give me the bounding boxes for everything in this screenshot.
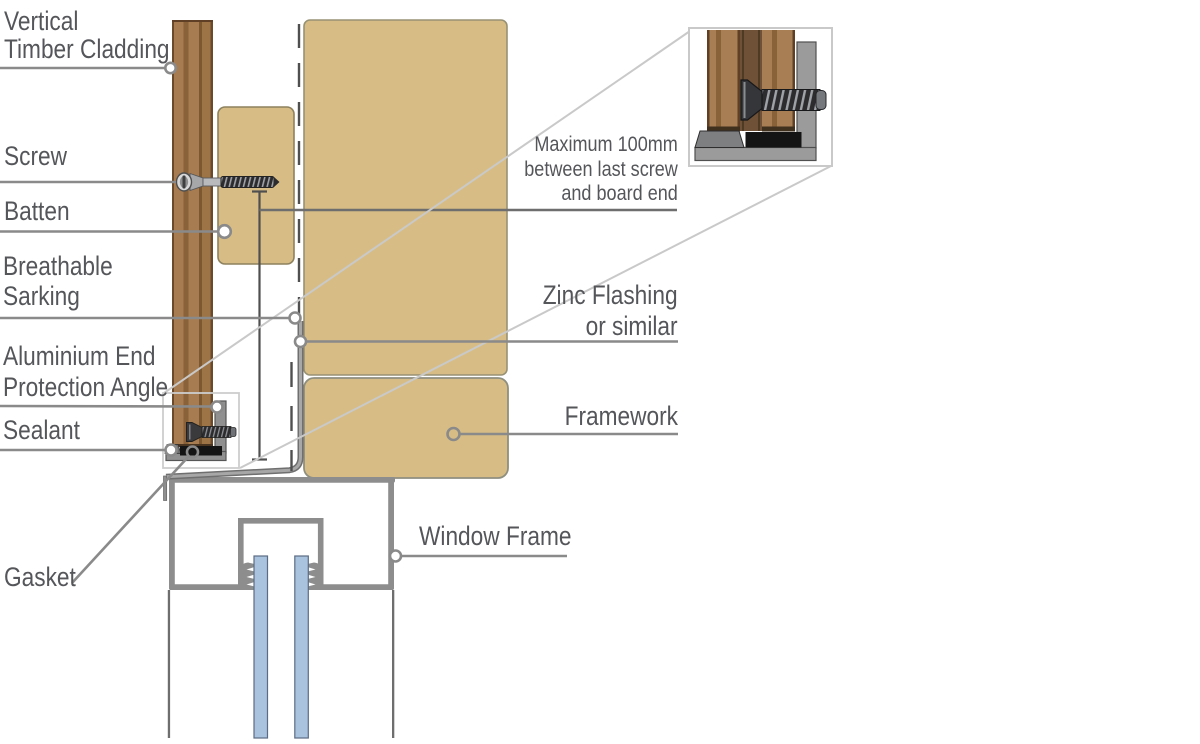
window-frame bbox=[168, 477, 395, 738]
frame-jamb-line-right bbox=[392, 590, 394, 738]
leader-vertical-timber-cladding bbox=[0, 63, 176, 73]
label-aluminium-end-protection-angle: Aluminium End Protection Angle bbox=[3, 341, 168, 403]
construction-detail-diagram: Vertical Timber Cladding Screw Batten Br… bbox=[0, 0, 1200, 744]
leader-sealant bbox=[0, 445, 177, 456]
structure-blocks bbox=[304, 20, 508, 478]
glass-pane-inner bbox=[295, 556, 309, 738]
glass-pane-outer bbox=[254, 556, 268, 738]
label-batten: Batten bbox=[4, 196, 70, 226]
label-max-screw-note: Maximum 100mm between last screw and boa… bbox=[524, 132, 678, 206]
glazing-gasket-left bbox=[239, 563, 255, 591]
label-framework: Framework bbox=[565, 401, 678, 431]
diagram-artwork bbox=[0, 0, 1200, 744]
framework-block bbox=[304, 378, 508, 478]
label-sealant: Sealant bbox=[3, 415, 80, 445]
frame-jamb-line-left bbox=[168, 590, 170, 738]
glazing-gasket-right bbox=[308, 563, 324, 591]
label-window-frame: Window Frame bbox=[419, 521, 571, 551]
inset-sealant bbox=[746, 132, 802, 148]
label-breathable-sarking: Breathable Sarking bbox=[3, 251, 113, 311]
label-vertical-timber-cladding: Vertical Timber Cladding bbox=[4, 7, 170, 63]
label-gasket: Gasket bbox=[4, 562, 76, 592]
leader-window-frame bbox=[390, 551, 567, 562]
window-frame-interior bbox=[171, 479, 392, 587]
label-zinc-flashing: Zinc Flashing or similar bbox=[543, 280, 678, 342]
inset-gasket bbox=[695, 131, 744, 148]
inset-detail bbox=[689, 28, 832, 166]
structure-block bbox=[304, 20, 507, 375]
label-screw: Screw bbox=[4, 141, 67, 171]
leader-breathable-sarking bbox=[0, 313, 301, 324]
